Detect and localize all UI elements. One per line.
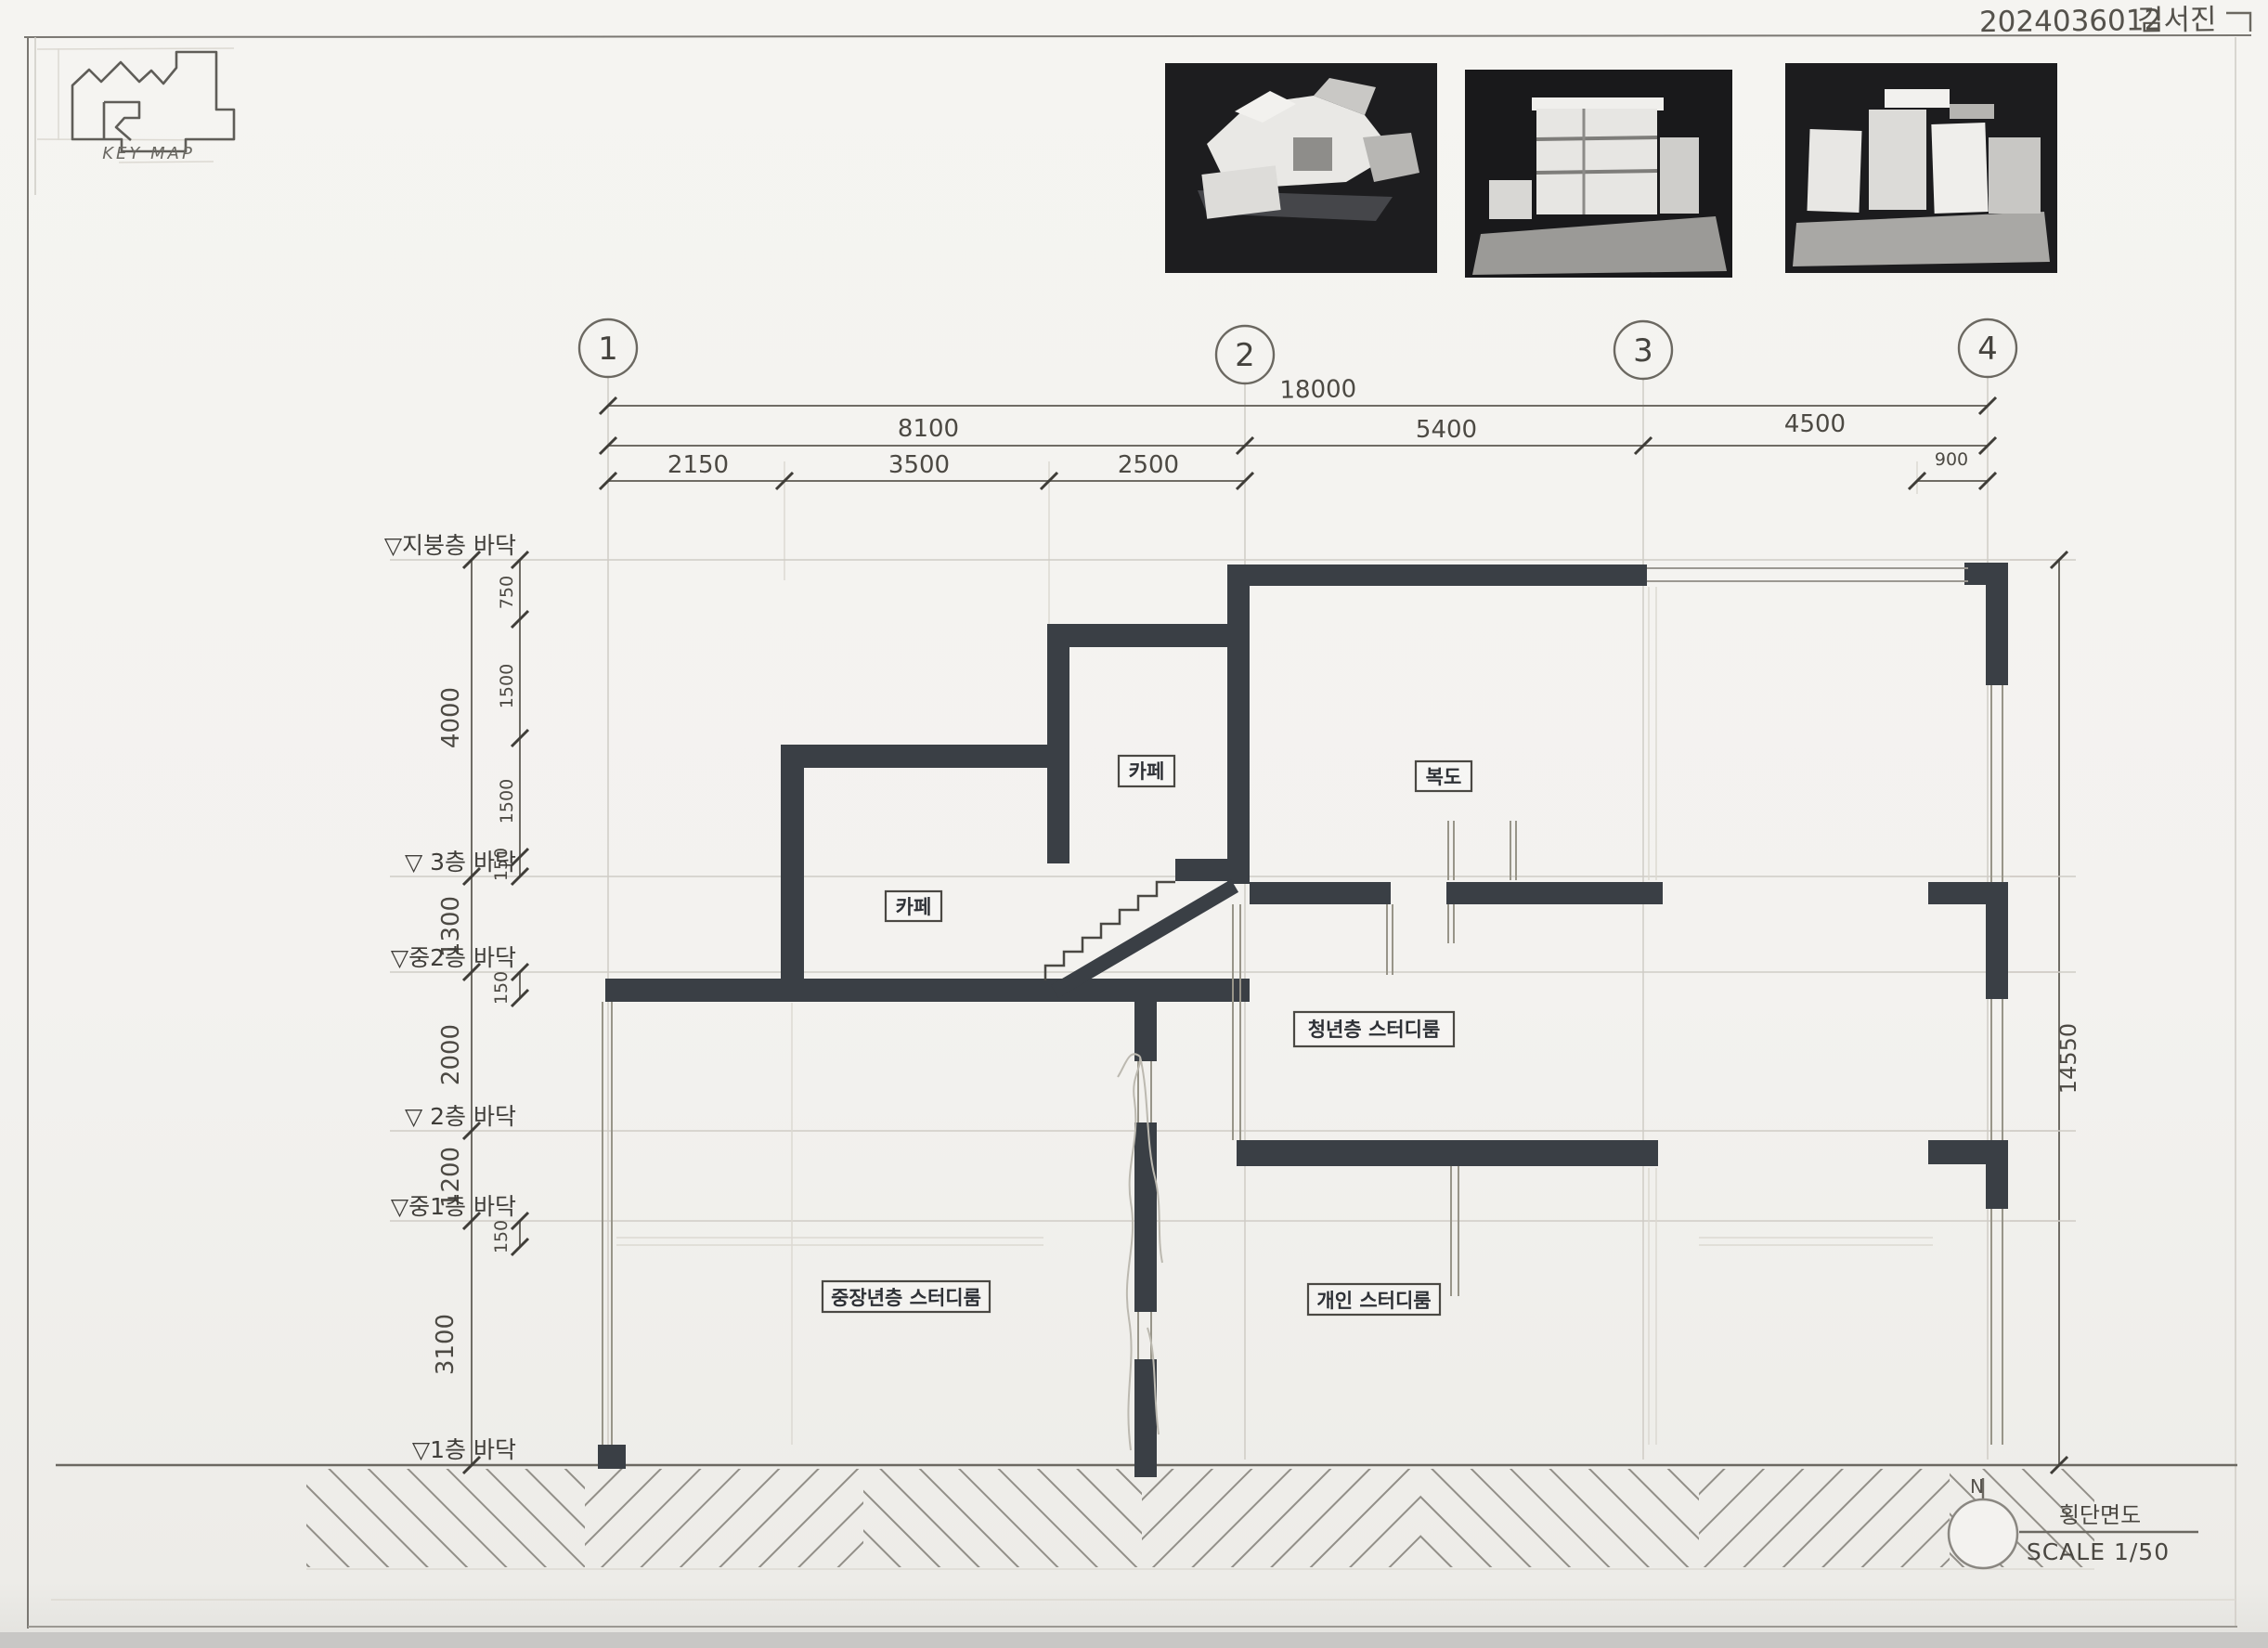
ground-hatch	[306, 1469, 2094, 1569]
level-label-m1f: ▽중1층 바닥	[391, 1193, 516, 1220]
dim-left-1500b: 1500	[497, 779, 517, 824]
stair	[1045, 882, 1235, 992]
dim-left-750: 750	[497, 576, 517, 609]
dim-top-total: 18000	[1279, 375, 1356, 404]
drawing-scale: SCALE 1/50	[2027, 1538, 2170, 1565]
grid-bubble-2-label: 2	[1235, 337, 1255, 374]
svg-text:카페: 카페	[896, 896, 932, 918]
drawing-title: 횡단면도	[2059, 1502, 2141, 1528]
scanned-drawing-sheet: KEY MAP 2024036012 김서진	[0, 0, 2268, 1648]
dim-sub-2150: 2150	[667, 451, 729, 479]
grid-bubble-4-label: 4	[1977, 331, 1998, 368]
model-photo-2	[1465, 70, 1732, 278]
room-label-corridor: 복도	[1416, 761, 1471, 791]
student-name: 김서진	[2137, 3, 2217, 37]
model-photo-3	[1785, 63, 2057, 273]
pencil-details	[616, 1003, 1933, 1450]
dim-left-1500a: 1500	[497, 664, 517, 708]
dim-sub-2500: 2500	[1118, 451, 1179, 479]
grid-bubble-1-label: 1	[598, 331, 618, 368]
level-label-1f: ▽1층 바닥	[412, 1436, 516, 1463]
level-label-3f: ▽ 3층 바닥	[405, 849, 516, 876]
dim-sub-900: 900	[1935, 449, 1968, 470]
left-dimensions: 4000 1300 2000 1200 3100 750 1500 1500 1…	[432, 551, 528, 1473]
dim-left-4000: 4000	[437, 687, 465, 748]
room-label-youth-study: 청년층 스터디룸	[1294, 1012, 1454, 1046]
glazing	[603, 568, 2002, 1445]
title-marker-circle	[1949, 1499, 2017, 1568]
room-label-cafe-upper: 카페	[1119, 756, 1174, 786]
dim-right-total: 14550	[2055, 1023, 2081, 1094]
corner-fold-mark	[2226, 13, 2250, 32]
model-photo-1	[1165, 63, 1437, 273]
svg-text:카페: 카페	[1129, 760, 1165, 783]
room-label-middleaged-study: 중장년층 스터디룸	[823, 1281, 990, 1312]
model-photos	[1165, 63, 2057, 278]
title-annotation: 2024036012 김서진	[1979, 3, 2217, 39]
dim-left-150b: 150	[491, 971, 512, 1005]
key-map: KEY MAP	[37, 48, 234, 163]
dim-span-4500: 4500	[1784, 410, 1846, 438]
key-map-label: KEY MAP	[102, 144, 195, 163]
key-map-inner-detail	[104, 102, 139, 140]
dim-span-8100: 8100	[898, 415, 959, 443]
scan-edge-shadow	[0, 1632, 2268, 1648]
grid-bubble-1: 1	[579, 319, 637, 377]
grid-bubble-2: 2	[1216, 326, 1274, 383]
student-id: 2024036012	[1979, 4, 2163, 39]
svg-text:복도: 복도	[1426, 766, 1462, 788]
room-label-cafe-mezz: 카페	[886, 891, 941, 921]
dim-span-5400: 5400	[1416, 416, 1477, 444]
north-label: N	[1970, 1475, 1984, 1498]
grid-bubble-4: 4	[1959, 319, 2016, 377]
svg-text:청년층 스터디룸: 청년층 스터디룸	[1308, 1019, 1441, 1041]
dim-left-2000: 2000	[437, 1024, 465, 1085]
grid-bubble-3-label: 3	[1633, 332, 1653, 370]
dim-sub-3500: 3500	[888, 451, 950, 479]
top-dimensions: 18000 8100 5400 4500 2150 3500 2500 900	[600, 375, 1996, 489]
level-label-m2f: ▽중2층 바닥	[391, 944, 516, 971]
svg-text:중장년층 스터디룸: 중장년층 스터디룸	[831, 1287, 981, 1309]
level-label-2f: ▽ 2층 바닥	[405, 1103, 516, 1130]
room-label-private-study: 개인 스터디룸	[1308, 1284, 1440, 1315]
dim-left-3100: 3100	[432, 1314, 460, 1375]
grid-bubble-3: 3	[1614, 321, 1672, 379]
right-dimension: 14550	[2010, 551, 2081, 1473]
dim-left-150c: 150	[491, 1220, 512, 1253]
svg-text:개인 스터디룸: 개인 스터디룸	[1316, 1290, 1431, 1312]
level-label-roof: ▽지붕층 바닥	[384, 532, 516, 559]
key-map-outline	[72, 52, 234, 151]
